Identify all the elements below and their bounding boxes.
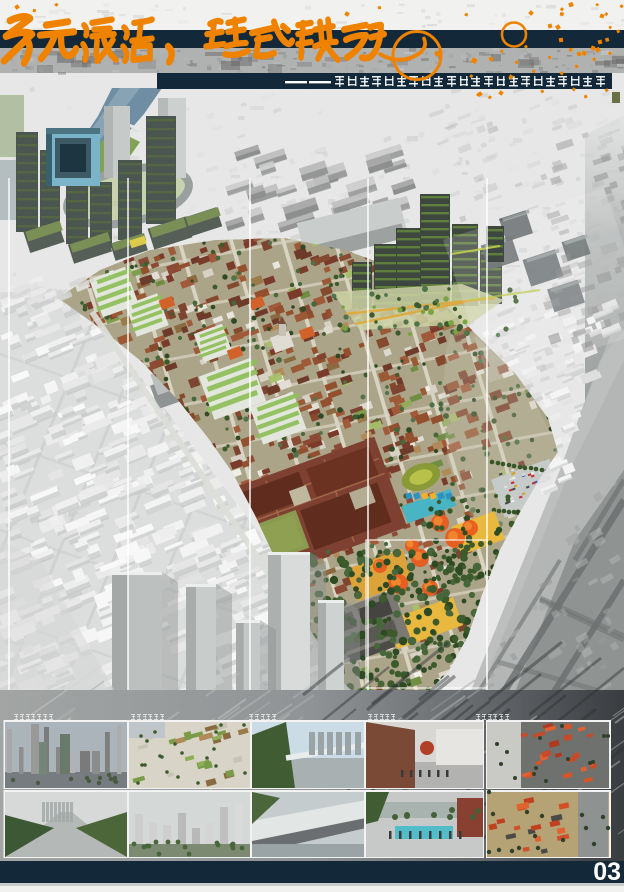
svg-text:03: 03 xyxy=(593,858,621,886)
